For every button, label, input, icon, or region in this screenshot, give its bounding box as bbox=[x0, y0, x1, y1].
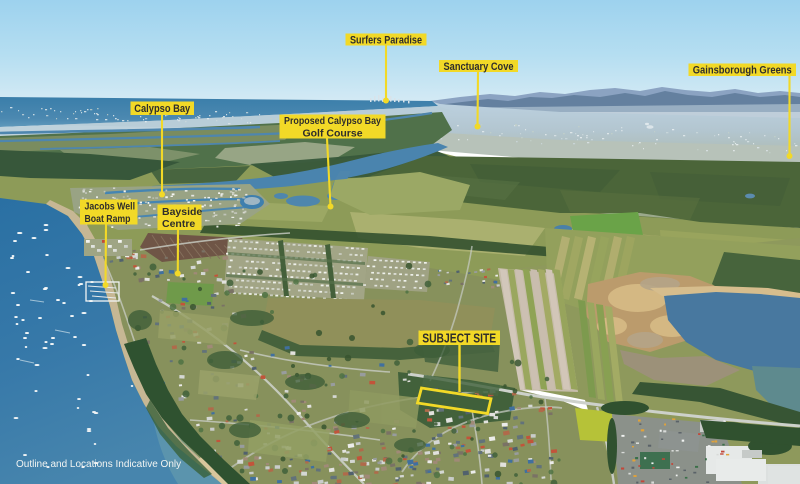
svg-text:Surfers Paradise: Surfers Paradise bbox=[350, 34, 422, 46]
svg-text:Outline and Locations Indicati: Outline and Locations Indicative Only bbox=[16, 459, 181, 470]
svg-text:Bayside: Bayside bbox=[162, 206, 202, 218]
svg-text:Golf Course: Golf Course bbox=[302, 127, 362, 139]
svg-text:Centre: Centre bbox=[162, 218, 195, 230]
svg-text:Calypso Bay: Calypso Bay bbox=[134, 103, 191, 115]
svg-text:Jacobs Well: Jacobs Well bbox=[85, 201, 136, 213]
svg-text:Gainsborough Greens: Gainsborough Greens bbox=[693, 65, 792, 77]
svg-text:SUBJECT SITE: SUBJECT SITE bbox=[422, 331, 496, 346]
svg-text:Proposed Calypso Bay: Proposed Calypso Bay bbox=[284, 115, 381, 127]
svg-text:Sanctuary Cove: Sanctuary Cove bbox=[444, 61, 514, 73]
svg-text:Boat Ramp: Boat Ramp bbox=[85, 213, 131, 225]
